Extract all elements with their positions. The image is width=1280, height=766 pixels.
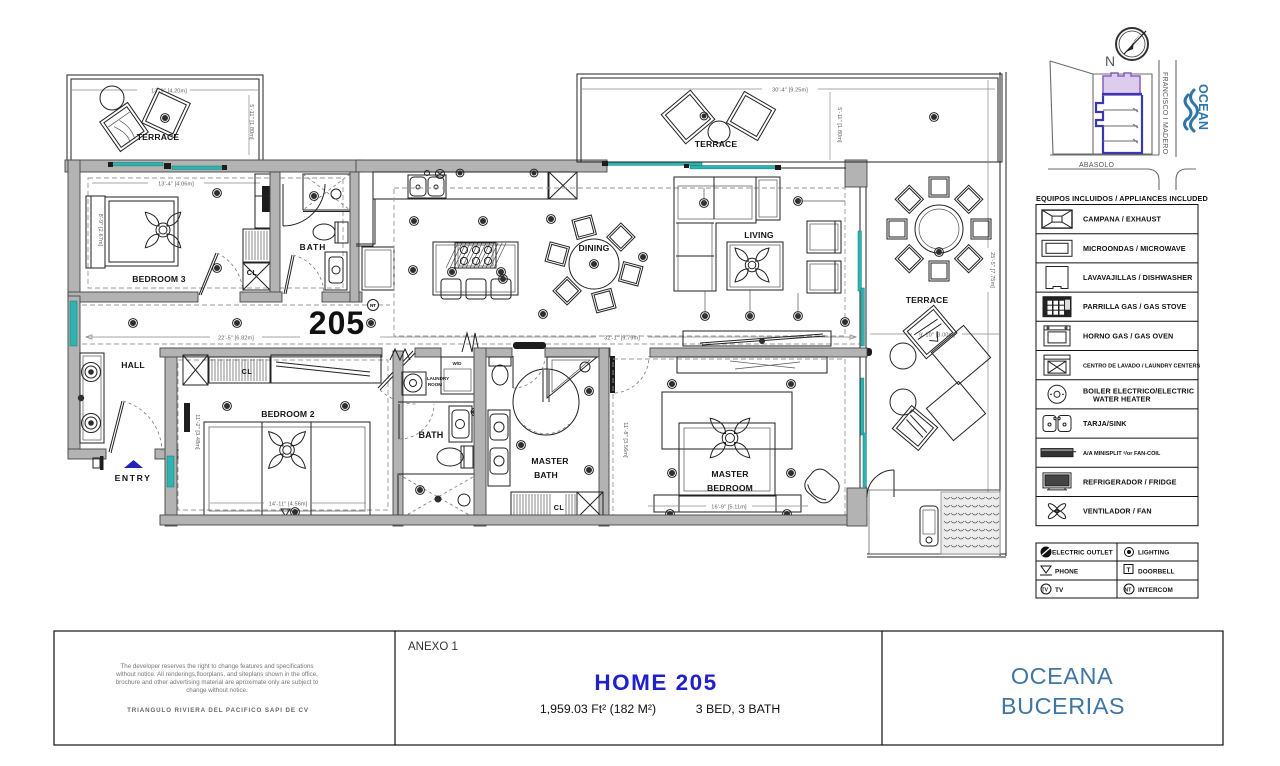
svg-text:ANEXO 1: ANEXO 1 (408, 641, 458, 653)
svg-text:22'-5" [6.82m]: 22'-5" [6.82m] (218, 336, 254, 342)
svg-text:11'-8" [3.56m]: 11'-8" [3.56m] (622, 422, 628, 458)
svg-text:HORNO GAS / GAS OVEN: HORNO GAS / GAS OVEN (1083, 331, 1173, 340)
svg-text:PHONE: PHONE (1055, 569, 1079, 576)
svg-text:TERRACE: TERRACE (137, 132, 180, 142)
svg-text:MASTER: MASTER (711, 469, 749, 479)
svg-text:BATH: BATH (534, 470, 558, 480)
svg-text:TV: TV (1055, 587, 1064, 594)
svg-text:ROOM: ROOM (428, 382, 442, 387)
svg-text:TRIANGULO RIVIERA DEL PACIFICO: TRIANGULO RIVIERA DEL PACIFICO SAPI DE C… (127, 707, 309, 714)
svg-text:MICROONDAS / MICROWAVE: MICROONDAS / MICROWAVE (1083, 244, 1186, 253)
svg-text:LIVING: LIVING (744, 230, 774, 240)
svg-text:LAVAVAJILLAS / DISHWASHER: LAVAVAJILLAS / DISHWASHER (1083, 273, 1193, 282)
svg-text:MASTER: MASTER (531, 456, 569, 466)
svg-text:32'-1" [9.79m]: 32'-1" [9.79m] (604, 336, 640, 342)
svg-text:1,959.03 Ft² (182 M²): 1,959.03 Ft² (182 M²) (540, 702, 656, 716)
svg-text:30'-4" [9.25m]: 30'-4" [9.25m] (772, 88, 808, 94)
svg-text:DINING: DINING (579, 243, 610, 253)
svg-text:14'-11" [4.56m]: 14'-11" [4.56m] (269, 502, 308, 508)
svg-text:TERRACE: TERRACE (906, 295, 949, 305)
svg-text:FRANCISCO I MADERO: FRANCISCO I MADERO (1161, 72, 1168, 155)
svg-text:11'-2" [3.48m]: 11'-2" [3.48m] (194, 414, 200, 450)
svg-text:WATER HEATER: WATER HEATER (1093, 394, 1151, 403)
svg-text:without notice. All renderings: without notice. All renderings,floorplan… (115, 671, 318, 678)
svg-text:BEDROOM 2: BEDROOM 2 (261, 409, 314, 419)
svg-text:T: T (1127, 567, 1131, 574)
svg-text:HOME 205: HOME 205 (594, 670, 717, 695)
svg-text:VENTILADOR / FAN: VENTILADOR / FAN (1083, 507, 1152, 516)
svg-text:TV: TV (1042, 588, 1049, 594)
svg-text:change without notice.: change without notice. (186, 687, 248, 694)
svg-text:TARJA/SINK: TARJA/SINK (1083, 419, 1127, 428)
svg-text:CENTRO DE LAVADO / LAUNDRY CEN: CENTRO DE LAVADO / LAUNDRY CENTERS (1083, 364, 1201, 370)
svg-text:BEDROOM 3: BEDROOM 3 (132, 274, 185, 284)
svg-text:8'-9" [2.67m]: 8'-9" [2.67m] (97, 214, 103, 247)
svg-text:BATH: BATH (300, 242, 327, 252)
svg-text:The developer reserves the rig: The developer reserves the right to chan… (121, 663, 314, 670)
svg-text:205: 205 (309, 305, 365, 341)
svg-text:OCEAN: OCEAN (1196, 84, 1210, 130)
svg-text:13'-4" [4.06m]: 13'-4" [4.06m] (158, 182, 194, 188)
svg-text:CAMPANA / EXHAUST: CAMPANA / EXHAUST (1083, 215, 1161, 224)
svg-text:EQUIPOS INCLUIDOS / APPLIANCES: EQUIPOS INCLUIDOS / APPLIANCES INCLUDED (1036, 194, 1208, 203)
svg-text:LIGHTING: LIGHTING (1138, 550, 1169, 557)
svg-text:NT: NT (1125, 588, 1132, 594)
svg-text:LAUNDRY: LAUNDRY (427, 376, 449, 381)
svg-text:NT: NT (370, 303, 376, 308)
svg-text:A/A MINISPLIT ˢ/or FAN-COIL: A/A MINISPLIT ˢ/or FAN-COIL (1083, 451, 1161, 457)
svg-text:INTERCOM: INTERCOM (1138, 587, 1173, 594)
svg-text:5'-11" [1.80m]: 5'-11" [1.80m] (248, 104, 254, 140)
svg-text:HALL: HALL (121, 360, 145, 370)
svg-text:5'-11" [1.80m]: 5'-11" [1.80m] (836, 107, 842, 143)
svg-text:N: N (1105, 53, 1115, 69)
svg-text:BUCERIAS: BUCERIAS (1001, 693, 1125, 719)
svg-text:CL: CL (554, 503, 565, 512)
svg-text:brochure and other advertising: brochure and other advertising material … (116, 679, 319, 686)
svg-text:CL: CL (242, 367, 253, 376)
svg-text:16'-9" [5.11m]: 16'-9" [5.11m] (711, 505, 747, 511)
svg-text:TERRACE: TERRACE (695, 139, 738, 149)
svg-text:OCEANA: OCEANA (1011, 663, 1113, 689)
svg-text:PARRILLA GAS / GAS STOVE: PARRILLA GAS / GAS STOVE (1083, 302, 1186, 311)
svg-text:ABASOLO: ABASOLO (1079, 162, 1115, 169)
svg-text:BATH: BATH (419, 430, 444, 440)
svg-text:ELECTRIC OUTLET: ELECTRIC OUTLET (1052, 550, 1113, 557)
svg-text:BEDROOM: BEDROOM (707, 483, 753, 493)
svg-text:CL: CL (247, 268, 258, 277)
svg-text:DOORBELL: DOORBELL (1138, 569, 1175, 576)
svg-text:ENTRY: ENTRY (115, 473, 152, 483)
svg-text:W/D: W/D (453, 361, 463, 366)
svg-text:25'-5" [7.75m]: 25'-5" [7.75m] (989, 252, 995, 288)
svg-text:REFRIGERADOR / FRIDGE: REFRIGERADOR / FRIDGE (1083, 477, 1177, 486)
svg-text:3 BED, 3 BATH: 3 BED, 3 BATH (696, 702, 781, 716)
